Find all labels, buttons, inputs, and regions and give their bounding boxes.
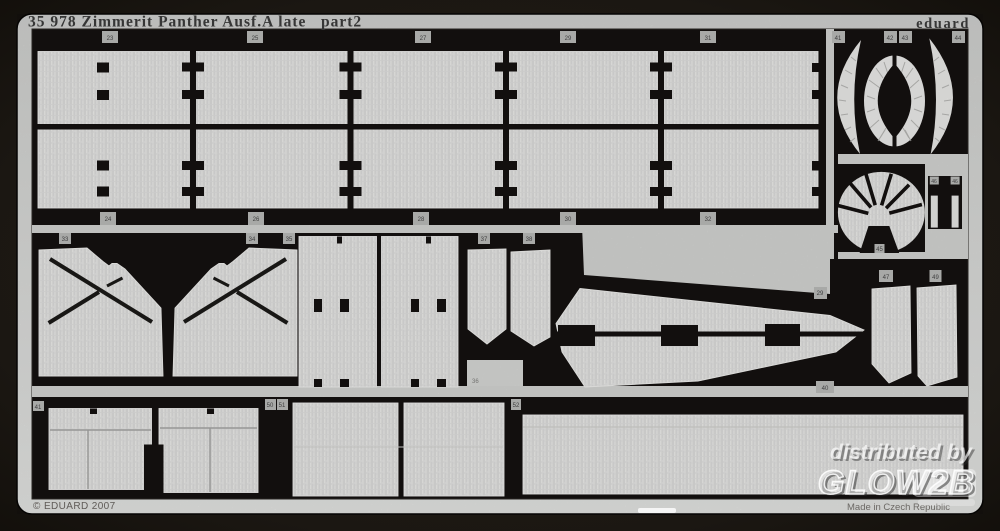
svg-text:distributed by: distributed by	[830, 440, 973, 464]
svg-text:GLOW2B: GLOW2B	[818, 464, 975, 502]
